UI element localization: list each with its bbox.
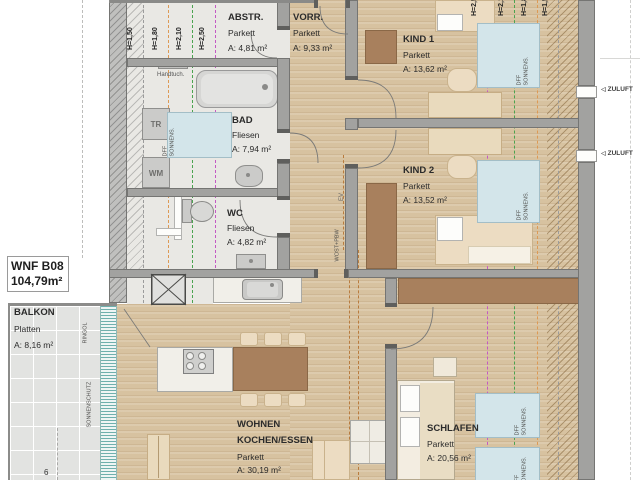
door-frame (277, 233, 290, 237)
door-frame (385, 303, 397, 307)
rooflight-text-sonnens: SONNENS. (525, 192, 531, 221)
floor-wood-living (117, 304, 290, 480)
door-frame (314, 269, 318, 278)
apartment-code: WNF B08 (11, 259, 68, 274)
low-height-hatch-right (547, 0, 578, 480)
dryer-label: TR (151, 120, 162, 129)
door-frame (344, 269, 348, 278)
stove-burner (186, 362, 194, 370)
room-label-kind1: KIND 1 (403, 35, 434, 45)
zuluft-text: ZULUFT (608, 151, 633, 158)
room-floor-balkon: Platten (14, 325, 40, 334)
bathtub-drain (262, 84, 268, 90)
ev-label: EV (339, 193, 345, 201)
rooflight-bad (167, 112, 232, 158)
door-frame (346, 0, 350, 8)
margin-line-right (600, 58, 640, 59)
height-label-250-right: H=2,50 (471, 0, 478, 16)
zuluft-label-1: ◁ ZULUFT (601, 87, 633, 94)
boundary-line-left (82, 0, 83, 258)
wall-kind2-schlafen (348, 269, 580, 278)
rooflight-text-sonnens: SONNENS. (523, 457, 529, 480)
towel-label: Handtuch. (157, 72, 184, 78)
wall-corridor-west (277, 237, 290, 270)
room-area-vorr: A: 9,33 m² (293, 44, 332, 53)
wall-exterior-left (109, 0, 127, 303)
height-label-180-left: H=1,80 (152, 27, 159, 50)
pillow-schlafen (400, 417, 420, 447)
height-line-150-left (143, 0, 144, 303)
axis-number: 6 (44, 468, 48, 477)
ringol-label: RINGOL (84, 322, 90, 343)
bad-washbasin-drain (246, 173, 250, 177)
installation-shaft (151, 274, 186, 305)
room-area-kind1: A: 13,62 m² (403, 65, 447, 74)
wardrobe-schlafen (398, 278, 580, 304)
height-label-250-left: H=2,50 (199, 27, 206, 50)
coffee-table (350, 420, 390, 464)
zuluft-arrow-icon: ◁ (601, 151, 606, 157)
door-frame (345, 76, 358, 80)
room-label-schlafen: SCHLAFEN (427, 424, 479, 434)
floor-plan: TR WM (0, 0, 640, 480)
rooflight-schlafen-1 (475, 393, 540, 438)
kitchen-faucet (270, 283, 274, 287)
apartment-area: 104,79m² (11, 274, 68, 289)
sofa-cushion-line (324, 441, 325, 479)
rooflight-text-dff: DFF (516, 475, 522, 480)
room-label-balkon: BALKON (14, 308, 55, 318)
pillow-schlafen (400, 385, 420, 412)
wall-corridor-east (345, 118, 358, 130)
stove-burner (198, 352, 206, 360)
chair-kind1 (447, 68, 477, 92)
boundary-line-right (630, 0, 631, 480)
wall-corridor-east (345, 168, 358, 270)
height-label-150-left: H=1,50 (127, 27, 134, 50)
room-area-schlafen: A: 20,56 m² (427, 454, 471, 463)
height-label-210-right: H=2,10 (498, 0, 505, 16)
stove-burner (186, 352, 194, 360)
duvet-kind2 (468, 246, 531, 264)
height-label-150-right: H=1,50 (542, 0, 549, 16)
room-floor-kind1: Parkett (403, 51, 430, 60)
room-area-bad: A: 7,94 m² (232, 145, 271, 154)
room-area-wc: A: 4,82 m² (227, 238, 266, 247)
room-area-kind2: A: 13,52 m² (403, 196, 447, 205)
desk-kind2 (428, 128, 502, 155)
washer-box: WM (142, 157, 170, 188)
wall-living-schlafen (385, 348, 397, 480)
wall-bad-wc (127, 188, 290, 197)
wall-corridor-east (345, 0, 358, 80)
room-label-wc: WC (227, 209, 243, 219)
wc-washbasin-drain (249, 259, 253, 263)
dining-chair (240, 393, 258, 407)
wall-exterior-right (578, 162, 595, 480)
pillow-kind1 (437, 14, 463, 31)
room-area-wohnen: A: 30,19 m² (237, 466, 281, 475)
room-label-abstr: ABSTR. (228, 13, 263, 23)
dryer-box: TR (142, 108, 170, 140)
door-frame (345, 164, 358, 168)
rooflight-text-sonnens: SONNENS. (523, 407, 529, 436)
wardrobe-kind2 (366, 183, 397, 269)
washer-label: WM (149, 169, 163, 178)
height-label-210-left: H=2,10 (176, 27, 183, 50)
room-label-wohnen-2: KOCHEN/ESSEN (237, 436, 313, 446)
zuluft-arrow-icon: ◁ (601, 87, 606, 93)
room-floor-bad: Fliesen (232, 131, 259, 140)
radiator-shelf-line (158, 436, 159, 478)
wall-exterior-right (578, 98, 595, 150)
dining-chair (240, 332, 258, 346)
room-floor-schlafen: Parkett (427, 440, 454, 449)
sonnenschutz-label: SONNENSCHUTZ (88, 382, 94, 428)
grab-bar-horizontal (156, 228, 182, 236)
room-label-vorr: VORR. (293, 13, 323, 23)
wall-abstr-bad (127, 58, 290, 67)
rooflight-text-sonnens: SONNENS. (525, 57, 531, 86)
height-line-150-right (558, 0, 559, 480)
coffee-table-line (351, 441, 389, 442)
height-label-180-right: H=1,80 (521, 0, 528, 16)
rooflight-text-dff: DFF (516, 425, 522, 436)
rooflight-kind2 (477, 160, 540, 223)
room-label-kind2: KIND 2 (403, 166, 434, 176)
room-floor-wc: Fliesen (227, 224, 254, 233)
desk-kind1 (428, 92, 502, 118)
rooflight-text-dff: DFF (518, 75, 524, 86)
stove-burner (198, 362, 206, 370)
door-frame (314, 0, 318, 8)
room-floor-vorr: Parkett (293, 29, 320, 38)
room-label-wohnen-1: WOHNEN (237, 420, 280, 430)
dining-chair (264, 332, 282, 346)
rooflight-text-dff: DFF (164, 146, 170, 157)
pillow-kind2 (437, 217, 463, 241)
rooflight-text-sonnens: SONNENS. (171, 128, 177, 157)
zuluft-label-2: ◁ ZULUFT (601, 151, 633, 158)
door-frame (277, 159, 290, 163)
toilet-bowl (190, 201, 214, 222)
nightstand-schlafen (433, 357, 457, 377)
wall-corridor-west (277, 163, 290, 200)
sofa (312, 440, 350, 480)
wall-kind1-kind2 (358, 118, 580, 128)
dining-chair (264, 393, 282, 407)
wardrobe-kind1 (365, 30, 397, 64)
wall-corridor-west (277, 58, 290, 133)
rooflight-kind1 (477, 23, 540, 88)
rooflight-text-dff: DFF (518, 210, 524, 221)
room-floor-wohnen: Parkett (237, 453, 264, 462)
wall-exterior-right (578, 0, 595, 86)
dining-chair (288, 332, 306, 346)
wall-top-edge (109, 0, 314, 3)
room-floor-kind2: Parkett (403, 182, 430, 191)
wost-label: WOST+PBW (336, 229, 342, 261)
door-frame (277, 196, 290, 200)
zuluft-vent (576, 150, 597, 162)
corridor-service-line (343, 155, 344, 250)
room-area-abstr: A: 4,81 m² (228, 44, 267, 53)
wall-wc-living (109, 269, 318, 278)
balcony-glazing-sunshade (100, 306, 117, 480)
chair-kind2 (447, 155, 477, 179)
room-area-balkon: A: 8,16 m² (14, 341, 53, 350)
rooflight-schlafen-2 (475, 447, 540, 480)
zuluft-text: ZULUFT (608, 87, 633, 94)
room-label-bad: BAD (232, 116, 253, 126)
dining-chair (288, 393, 306, 407)
dining-table (233, 347, 308, 391)
door-frame (277, 26, 290, 30)
axis-line-balcony (57, 428, 58, 480)
door-frame (385, 344, 397, 348)
apartment-title-box: WNF B08 104,79m² (7, 256, 69, 292)
coffee-table-line (369, 421, 370, 463)
room-floor-abstr: Parkett (228, 29, 255, 38)
door-frame (277, 129, 290, 133)
zuluft-vent (576, 86, 597, 98)
